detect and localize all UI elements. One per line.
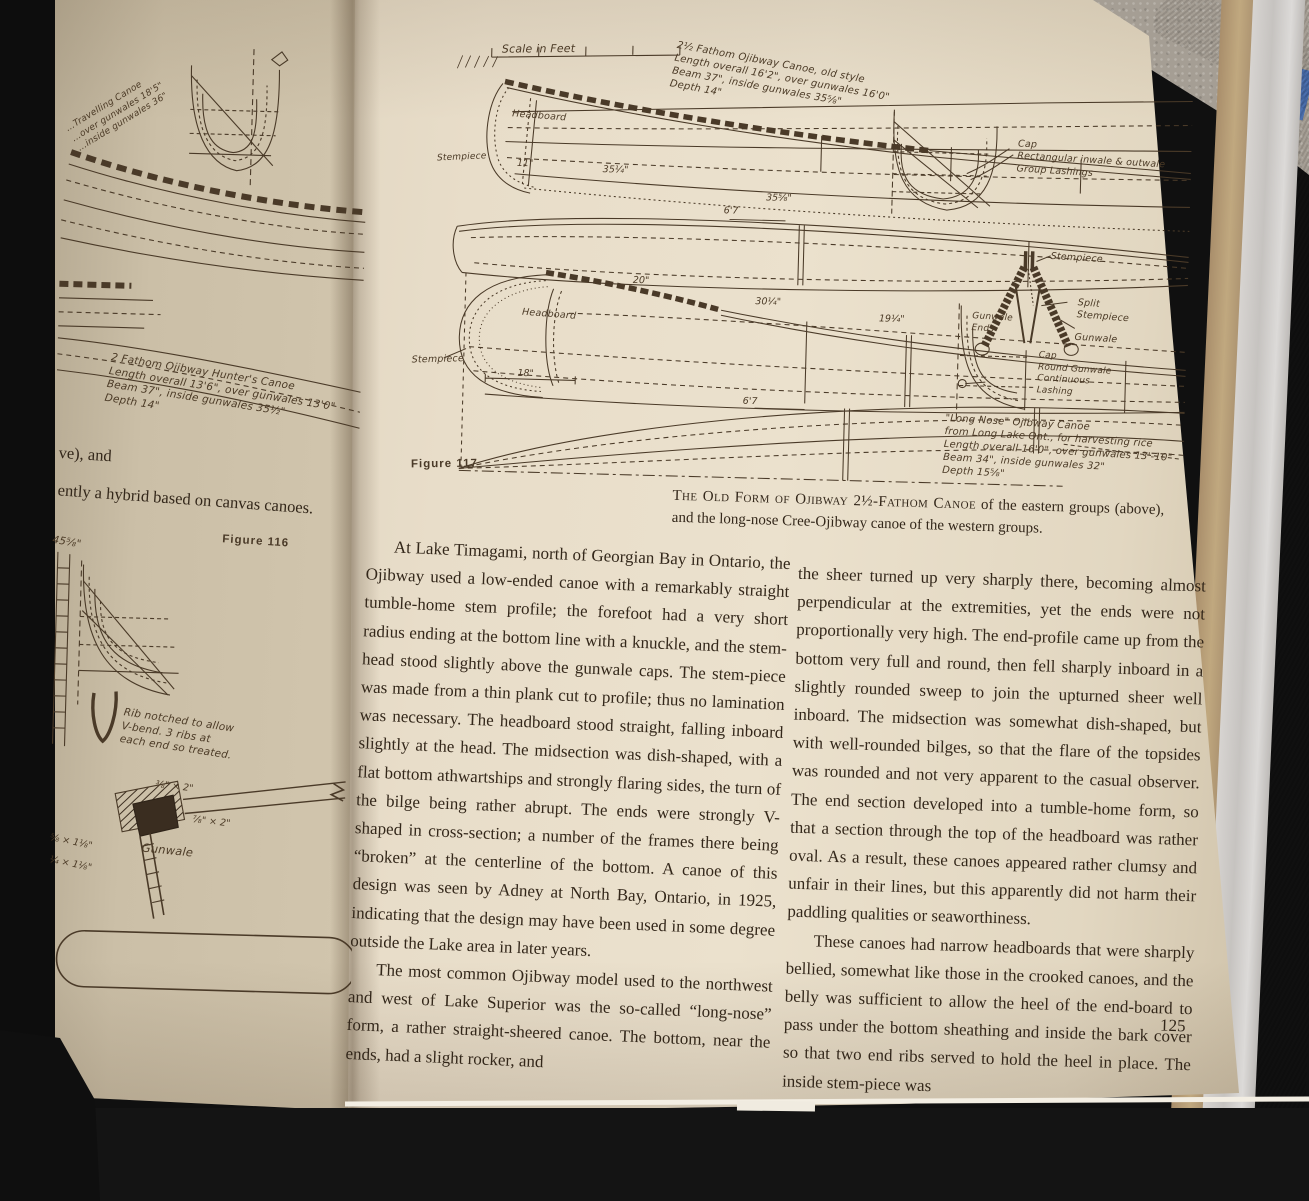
dim-67a: 6'7 bbox=[724, 205, 739, 216]
text-fragment-1: ve), and bbox=[58, 443, 112, 466]
gunwale-detail-label: Gunwale bbox=[1074, 332, 1118, 347]
dim-19: 19¼" bbox=[879, 313, 905, 325]
figure-caption-lead: The Old Form of Ojibway 2½-Fathom Canoe bbox=[672, 488, 976, 513]
gunwale-ends-label: Gunwale Ends bbox=[971, 311, 1013, 337]
body-column-left: At Lake Timagami, north of Georgian Bay … bbox=[345, 532, 791, 1085]
paragraph: the sheer turned up very sharply there, … bbox=[787, 560, 1206, 939]
scale-label: Scale in Feet bbox=[502, 42, 576, 57]
dim-30: 30¼" bbox=[755, 296, 781, 308]
dim-35b: 35⅝" bbox=[766, 192, 792, 204]
dim-18: 18" bbox=[517, 368, 534, 379]
page-corner-notch bbox=[737, 1100, 815, 1111]
figure-116-line-art bbox=[36, 32, 378, 1070]
split-stempiece-label: Split Stempiece bbox=[1076, 297, 1130, 326]
paragraph: The most common Ojibway model used to th… bbox=[345, 955, 773, 1085]
stempiece-longnose-label: Stempiece bbox=[412, 353, 465, 367]
dim-11: 11" bbox=[517, 158, 534, 169]
paragraph: These canoes had narrow headboards that … bbox=[782, 926, 1195, 1108]
foreground-black-bottom bbox=[0, 1108, 1309, 1201]
figure-117-area: Scale in Feet 2½ Fathom Ojibway Canoe, o… bbox=[422, 40, 1234, 516]
round-gunwale-label: Cap Round Gunwale Continuous Lashing bbox=[1036, 350, 1112, 401]
dim-35a: 35¼" bbox=[603, 164, 629, 176]
page-number: 125 bbox=[1160, 1016, 1186, 1037]
figure-116-area: …Travelling Canoe …over gunwales 18'5" …… bbox=[36, 32, 378, 1070]
body-column-right: the sheer turned up very sharply there, … bbox=[782, 560, 1207, 1108]
figure-117-label: Figure 117 bbox=[411, 458, 478, 471]
book-photo: …Travelling Canoe …over gunwales 18'5" …… bbox=[0, 0, 1309, 1201]
dim-20: 20" bbox=[633, 275, 650, 286]
stempiece-top-label: Stempiece bbox=[437, 151, 487, 165]
dim-67b: 6'7 bbox=[743, 396, 758, 407]
paragraph: At Lake Timagami, north of Georgian Bay … bbox=[350, 532, 791, 972]
